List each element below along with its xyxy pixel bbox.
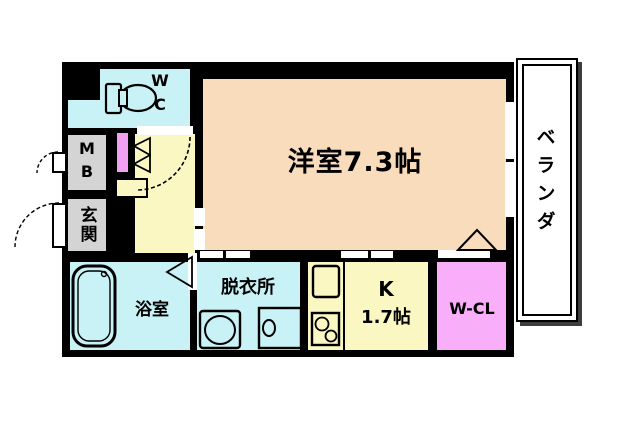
hallway-step-box — [115, 178, 148, 198]
floor-plan: 洋室7.3帖 ベランダ W C M B 玄関 浴室 脱衣所 K 1.7帖 W-C… — [0, 0, 640, 433]
dressing-label: 脱衣所 — [206, 276, 290, 296]
kitchen-window — [341, 251, 368, 258]
hall-main-door-opening2 — [194, 229, 205, 250]
wc-label-c: C — [150, 95, 170, 113]
room-wc-notch — [68, 100, 100, 128]
closet-door-strip — [117, 133, 128, 172]
kitchen-label-size: 1.7帖 — [354, 305, 418, 327]
room-wc — [100, 69, 190, 128]
main-room-label: 洋室7.3帖 — [230, 140, 480, 178]
wcl-door-opening — [438, 250, 490, 258]
dressing-window — [200, 251, 223, 258]
genkan-label: 玄関 — [76, 203, 98, 247]
bath-door-opening — [188, 253, 197, 290]
wc-label-w: W — [150, 71, 170, 89]
mb-label-m: M — [77, 139, 97, 157]
veranda-label: ベランダ — [528, 108, 562, 258]
veranda-window — [505, 102, 515, 159]
dressing-window2 — [226, 251, 250, 258]
mb-label-b: B — [77, 162, 97, 180]
entrance-door-leaf — [52, 203, 67, 248]
wcl-label: W-CL — [440, 298, 504, 318]
hall-main-door-opening — [194, 208, 205, 226]
wc-door-opening — [137, 126, 193, 135]
kitchen-window2 — [371, 251, 393, 258]
bath-label: 浴室 — [126, 297, 178, 317]
veranda-window2 — [505, 162, 515, 217]
mb-door-leaf — [52, 152, 67, 173]
kitchen-label-k: K — [374, 278, 398, 300]
